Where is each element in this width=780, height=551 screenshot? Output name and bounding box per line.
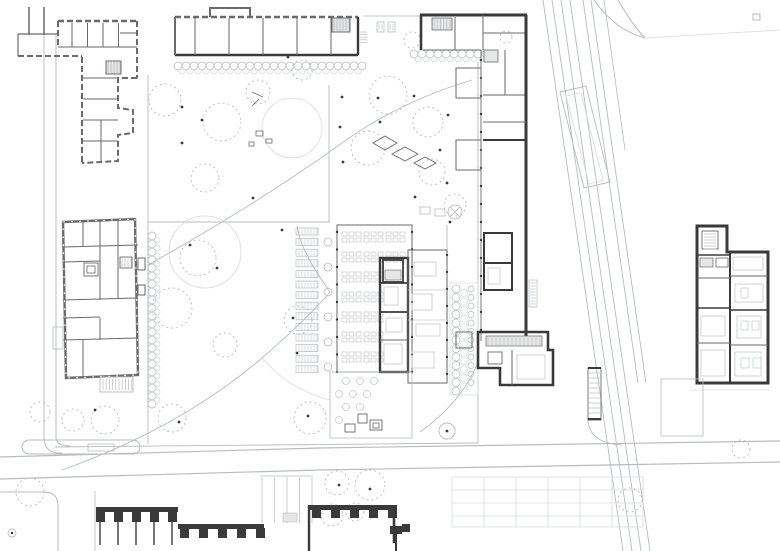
site-plan-page xyxy=(0,0,780,551)
site-plan-drawing xyxy=(0,0,780,551)
